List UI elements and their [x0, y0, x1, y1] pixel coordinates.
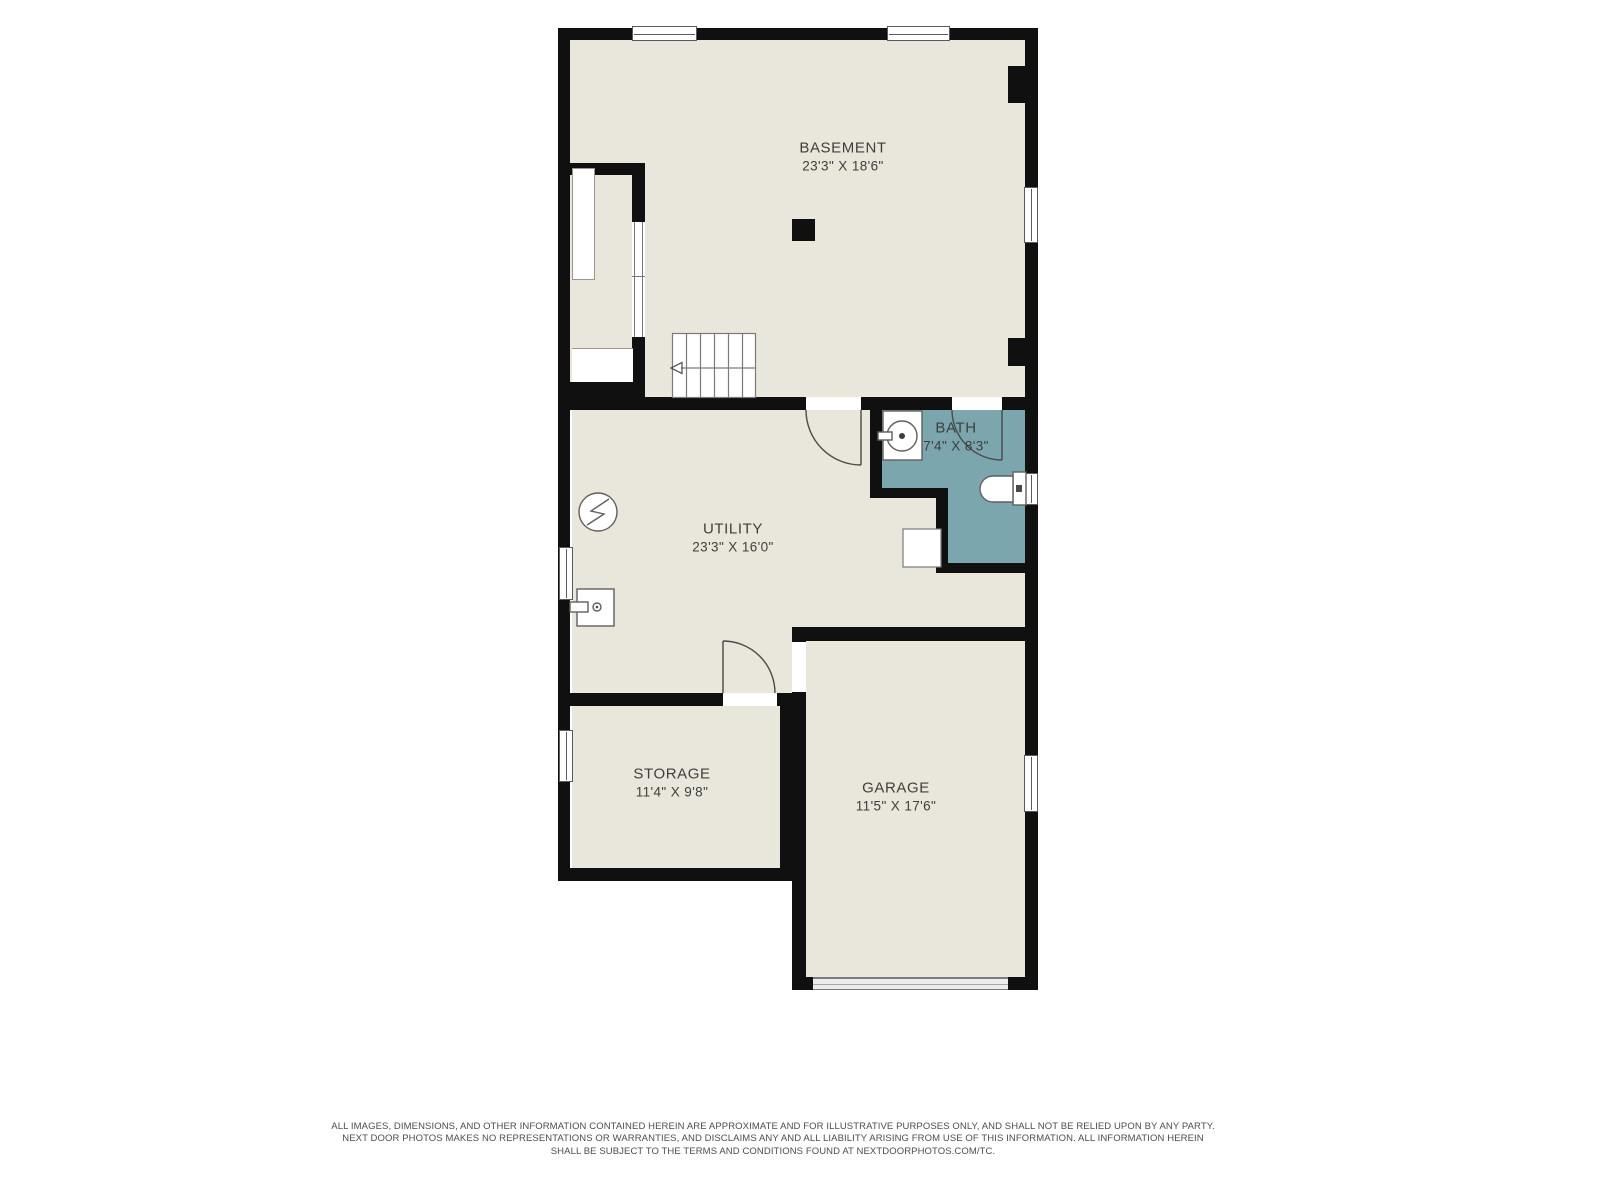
garage-top-wall: [792, 627, 1038, 641]
disclaimer-line-2: NEXT DOOR PHOTOS MAKES NO REPRESENTATION…: [183, 1133, 1363, 1145]
garage-dims: 11'5" X 17'6": [856, 798, 937, 815]
basement-window-top-left: [632, 26, 697, 41]
disclaimer: ALL IMAGES, DIMENSIONS, AND OTHER INFORM…: [183, 1121, 1363, 1158]
garage-label: GARAGE 11'5" X 17'6": [856, 780, 937, 815]
bath-floor-lower: [948, 488, 1025, 563]
alcove-bottom-wall: [558, 382, 645, 397]
wall-pilaster-top: [1008, 66, 1025, 103]
storage-right-wall: [780, 693, 792, 881]
utility-dims: 23'3" X 16'0": [692, 539, 774, 556]
basement-dims: 23'3" X 18'6": [799, 158, 886, 175]
bath-window-right: [1024, 473, 1038, 505]
storage-name: STORAGE: [633, 766, 710, 784]
disclaimer-line-1: ALL IMAGES, DIMENSIONS, AND OTHER INFORM…: [183, 1121, 1363, 1133]
bath-name: BATH: [923, 420, 989, 438]
storage-door-opening: [723, 693, 777, 706]
floor-plan-canvas: BASEMENT 23'3" X 18'6" UTILITY 23'3" X 1…: [0, 0, 1600, 1200]
basement-name: BASEMENT: [799, 140, 886, 158]
garage-window-right: [1024, 755, 1038, 812]
alcove-landing: [572, 348, 633, 382]
disclaimer-line-3: SHALL BE SUBJECT TO THE TERMS AND CONDIT…: [183, 1146, 1363, 1158]
utility-name: UTILITY: [692, 521, 774, 539]
storage-window-left: [559, 730, 573, 782]
bath-bottom-wall: [936, 563, 1038, 573]
bath-label: BATH 7'4" X 8'3": [923, 420, 989, 455]
basement-window-right: [1024, 187, 1038, 243]
wall-right: [1025, 28, 1038, 990]
storage-bottom-wall: [558, 868, 792, 881]
wall-pilaster-bottom: [1008, 338, 1025, 366]
garage-name: GARAGE: [856, 780, 937, 798]
utility-door-opening: [806, 397, 861, 410]
utility-window-left: [559, 547, 573, 600]
basement-label: BASEMENT 23'3" X 18'6": [799, 140, 886, 175]
alcove-window-well: [572, 168, 595, 280]
utility-label: UTILITY 23'3" X 16'0": [692, 521, 774, 556]
wall-top: [558, 28, 1038, 40]
bath-door-opening: [952, 397, 1002, 410]
closet-sliding-door: [632, 222, 645, 337]
garage-door: [813, 977, 1008, 990]
bath-dims: 7'4" X 8'3": [923, 438, 989, 455]
basement-window-top-right: [887, 26, 950, 41]
bath-notch-wall-v: [936, 488, 948, 573]
bath-left-wall: [870, 397, 882, 498]
garage-side-door-opening: [792, 642, 806, 692]
storage-dims: 11'4" X 9'8": [633, 784, 710, 801]
storage-label: STORAGE 11'4" X 9'8": [633, 766, 710, 801]
support-column: [792, 219, 815, 241]
